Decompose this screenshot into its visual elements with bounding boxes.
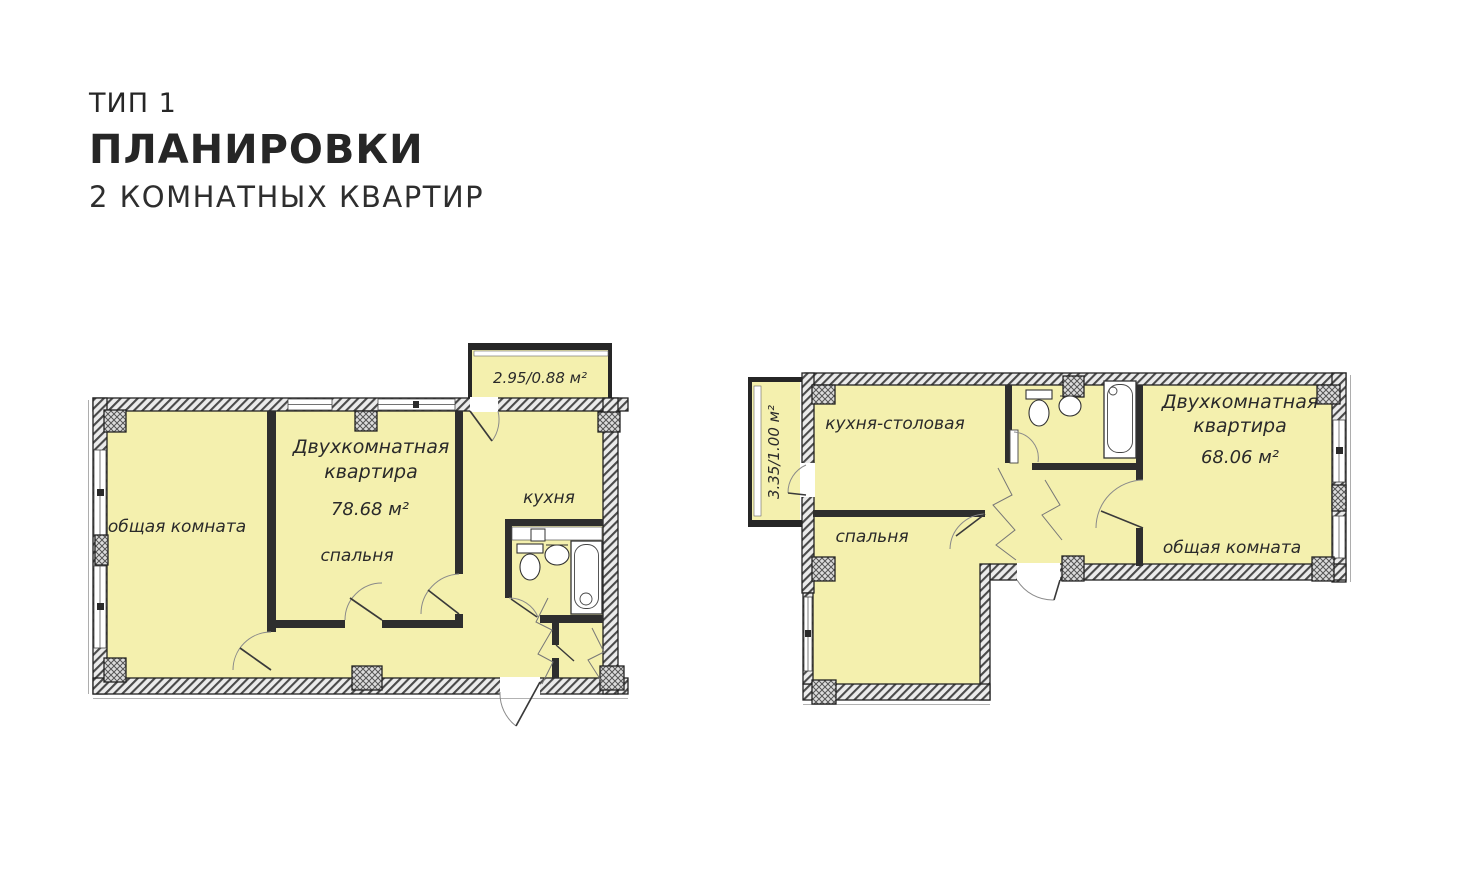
balcony-wall (748, 377, 752, 527)
window-tick (1336, 447, 1343, 454)
bathroom-door-leaf (1010, 430, 1018, 463)
floor-plan-right: 3.35/1.00 м² кухня-столовая спальня Двух… (748, 373, 1351, 705)
toilet-fixture (1029, 400, 1049, 426)
balcony-wall (468, 343, 612, 350)
apartment-type-label-2: квартира (324, 461, 418, 483)
wall-l-corner (980, 564, 990, 700)
sink-fixture (1059, 396, 1081, 416)
corner-pillar (812, 385, 835, 404)
entry-door-arc (500, 692, 516, 726)
balcony-area-label: 2.95/0.88 м² (493, 369, 587, 387)
window-tick (97, 489, 104, 496)
kitchen-label: кухня (523, 488, 575, 508)
apartment-type-label-1: Двухкомнатная (1161, 391, 1319, 413)
balcony-wall (748, 520, 805, 527)
entry-door-leaf (1054, 580, 1060, 600)
wall-living-divider (267, 411, 276, 632)
balcony-window (474, 351, 608, 356)
sink-fixture (545, 545, 569, 565)
entry-door-arc (1017, 580, 1054, 600)
window-tick (97, 603, 104, 610)
apartment-area-label: 68.06 м² (1201, 447, 1279, 468)
corner-pillar (600, 666, 624, 690)
wall-bedroom-bottom (267, 620, 345, 628)
balcony-wall (748, 377, 805, 382)
wall-living-divider (1136, 385, 1143, 480)
balcony-window (754, 386, 761, 516)
wall-pillar (1332, 485, 1346, 511)
toilet-fixture (520, 554, 540, 580)
wall-bedroom-divider (813, 510, 985, 517)
wall-top (93, 398, 628, 411)
wall-kitchen-divider (455, 614, 463, 628)
living-room-label: общая комната (1163, 538, 1301, 558)
corner-pillar (1312, 557, 1334, 581)
corner-pillar (104, 658, 126, 682)
kitchen-dining-label: кухня-столовая (825, 414, 964, 434)
wall-pillar (95, 535, 108, 565)
balcony-door-gap (801, 463, 815, 497)
balcony-wall (468, 343, 472, 402)
floor-plans-canvas: 2.95/0.88 м² общая комната Двухкомнатная… (0, 0, 1477, 886)
apartment-area-label: 78.68 м² (331, 499, 409, 520)
corner-pillar (812, 680, 836, 704)
wall-storage (552, 658, 559, 678)
corner-pillar (1317, 385, 1340, 404)
toilet-tank (517, 544, 543, 553)
wall-right (603, 398, 618, 694)
wall-pillar (1062, 556, 1084, 581)
wall-pillar (1063, 376, 1084, 397)
vanity-counter (512, 527, 602, 540)
floor-plan-left: 2.95/0.88 м² общая комната Двухкомнатная… (89, 343, 629, 726)
apartment-type-label-2: квартира (1193, 415, 1287, 437)
window-tick (413, 401, 419, 408)
apartment-type-label-1: Двухкомнатная (292, 436, 450, 458)
balcony-area-label: 3.35/1.00 м² (765, 405, 783, 499)
balcony-wall (608, 343, 612, 402)
balcony-door-gap (470, 397, 498, 412)
wall-living-divider (1136, 528, 1143, 566)
wall-storage (552, 623, 559, 645)
window-tick (805, 630, 811, 637)
bedroom-label: спальня (835, 527, 908, 547)
wall-kitchen-divider (455, 411, 463, 574)
wall-bathroom-bottom (540, 615, 603, 623)
wall-pillar (812, 557, 835, 581)
entry-door-gap (1017, 563, 1060, 581)
toilet-tank (1026, 390, 1052, 399)
bedroom-label: спальня (320, 546, 393, 566)
corner-pillar (598, 412, 620, 432)
wall-pillar (355, 411, 377, 431)
washing-machine-fixture (531, 529, 545, 541)
wall-bathroom-left (505, 526, 512, 598)
wall-bedroom-bottom (382, 620, 462, 628)
wall-bathroom-bottom (1032, 463, 1136, 470)
living-room-label: общая комната (108, 517, 246, 537)
wall-pillar (352, 666, 382, 690)
page: { "header": { "type_label": "ТИП 1", "ti… (0, 0, 1477, 886)
wall-bathroom-top (505, 519, 603, 526)
corner-pillar (104, 410, 126, 432)
